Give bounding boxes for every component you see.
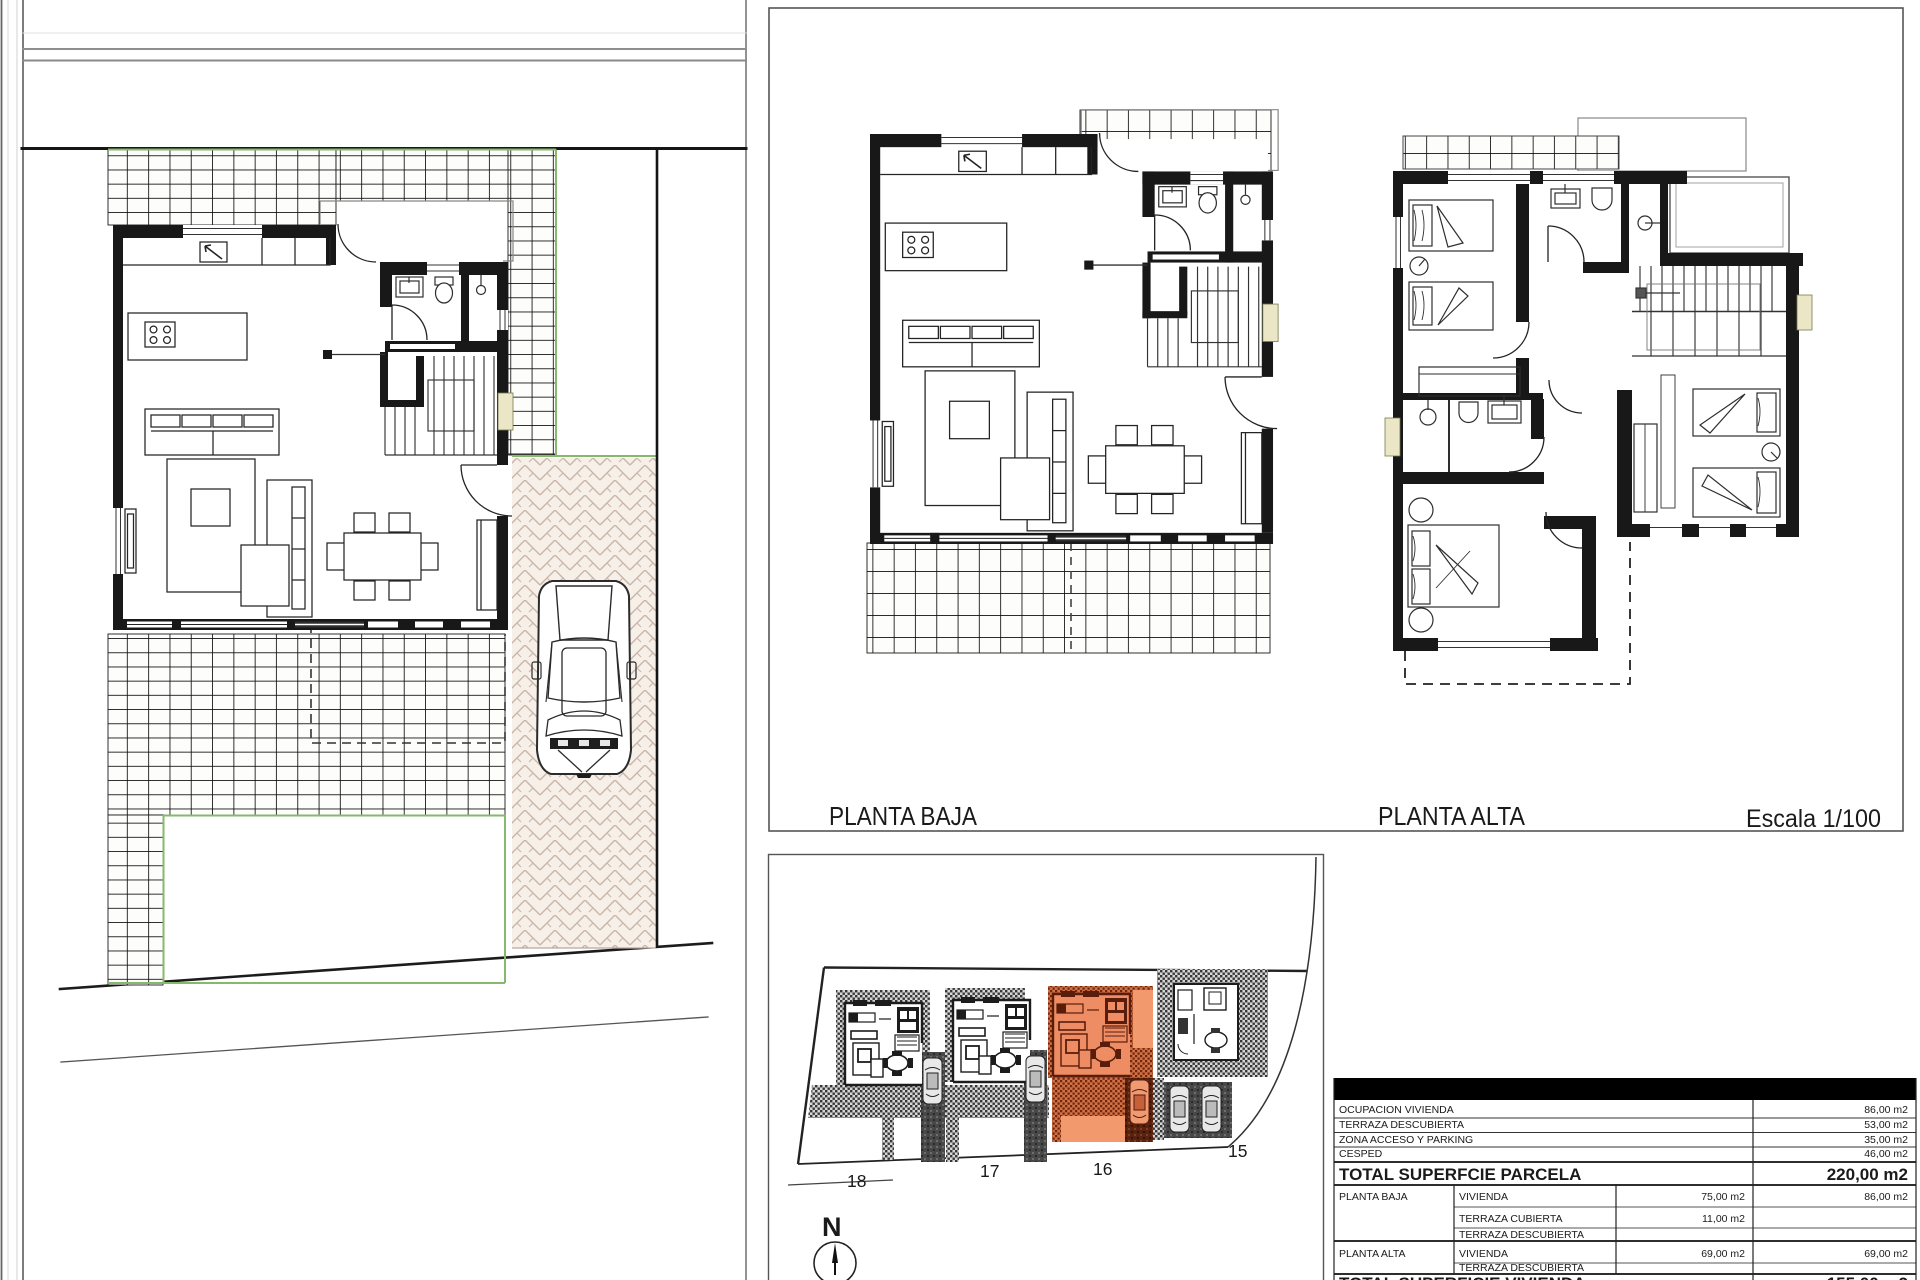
- svg-text:86,00 m2: 86,00 m2: [1864, 1104, 1908, 1116]
- svg-text:15: 15: [1228, 1141, 1247, 1161]
- svg-text:PLANTA BAJA: PLANTA BAJA: [1339, 1191, 1408, 1203]
- svg-text:16: 16: [1093, 1159, 1112, 1179]
- svg-text:PLANTA ALTA: PLANTA ALTA: [1339, 1248, 1406, 1260]
- svg-text:OCUPACION VIVIENDA: OCUPACION VIVIENDA: [1339, 1104, 1454, 1116]
- svg-text:ZONA ACCESO Y PARKING: ZONA ACCESO Y PARKING: [1339, 1134, 1473, 1146]
- svg-text:Escala 1/100: Escala 1/100: [1746, 805, 1881, 833]
- svg-text:11,00 m2: 11,00 m2: [1702, 1213, 1745, 1225]
- svg-text:46,00 m2: 46,00 m2: [1864, 1148, 1908, 1160]
- svg-text:18: 18: [847, 1171, 866, 1191]
- svg-text:VIVIENDA: VIVIENDA: [1459, 1191, 1508, 1203]
- svg-text:TOTAL SUPERFCIE PARCELA: TOTAL SUPERFCIE PARCELA: [1339, 1165, 1581, 1184]
- svg-text:35,00 m2: 35,00 m2: [1864, 1134, 1908, 1146]
- svg-text:75,00 m2: 75,00 m2: [1701, 1191, 1745, 1203]
- svg-text:CESPED: CESPED: [1339, 1148, 1383, 1160]
- svg-text:86,00 m2: 86,00 m2: [1864, 1191, 1908, 1203]
- svg-text:TERRAZA DESCUBIERTA: TERRAZA DESCUBIERTA: [1459, 1262, 1584, 1274]
- svg-text:220,00 m2: 220,00 m2: [1827, 1165, 1908, 1184]
- svg-text:155,00 m2: 155,00 m2: [1827, 1274, 1908, 1280]
- svg-text:VIVIENDA: VIVIENDA: [1459, 1248, 1508, 1260]
- svg-text:TERRAZA DESCUBIERTA: TERRAZA DESCUBIERTA: [1459, 1229, 1584, 1241]
- svg-text:17: 17: [980, 1161, 999, 1181]
- svg-text:PLANTA BAJA: PLANTA BAJA: [829, 801, 978, 831]
- svg-text:TOTAL SUPERFICIE VIVIENDA: TOTAL SUPERFICIE VIVIENDA: [1339, 1274, 1586, 1280]
- svg-text:PLANTA ALTA: PLANTA ALTA: [1378, 801, 1526, 831]
- svg-text:TERRAZA DESCUBIERTA: TERRAZA DESCUBIERTA: [1339, 1119, 1464, 1131]
- svg-text:TERRAZA CUBIERTA: TERRAZA CUBIERTA: [1459, 1213, 1562, 1225]
- svg-text:53,00 m2: 53,00 m2: [1864, 1119, 1908, 1131]
- svg-text:N: N: [822, 1212, 842, 1242]
- svg-text:69,00 m2: 69,00 m2: [1864, 1248, 1908, 1260]
- svg-text:69,00 m2: 69,00 m2: [1701, 1248, 1745, 1260]
